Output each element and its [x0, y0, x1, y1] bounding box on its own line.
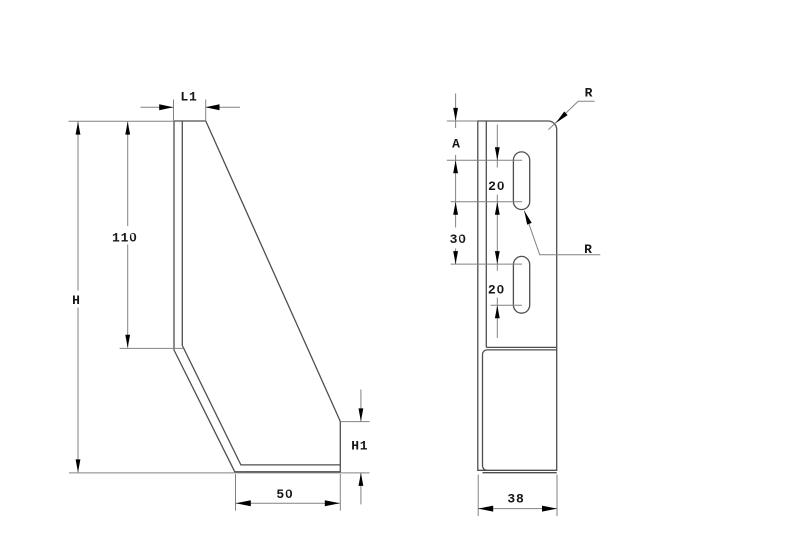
svg-text:R: R [584, 242, 592, 257]
svg-text:H1: H1 [351, 439, 368, 454]
svg-text:110: 110 [112, 230, 138, 245]
svg-text:L1: L1 [180, 89, 197, 104]
svg-text:R: R [585, 86, 593, 101]
svg-text:A: A [452, 137, 460, 152]
svg-text:38: 38 [507, 492, 524, 507]
svg-text:H: H [72, 293, 80, 308]
svg-text:30: 30 [450, 232, 467, 247]
svg-text:20: 20 [488, 179, 505, 194]
svg-text:50: 50 [276, 487, 293, 502]
svg-text:20: 20 [488, 282, 505, 297]
